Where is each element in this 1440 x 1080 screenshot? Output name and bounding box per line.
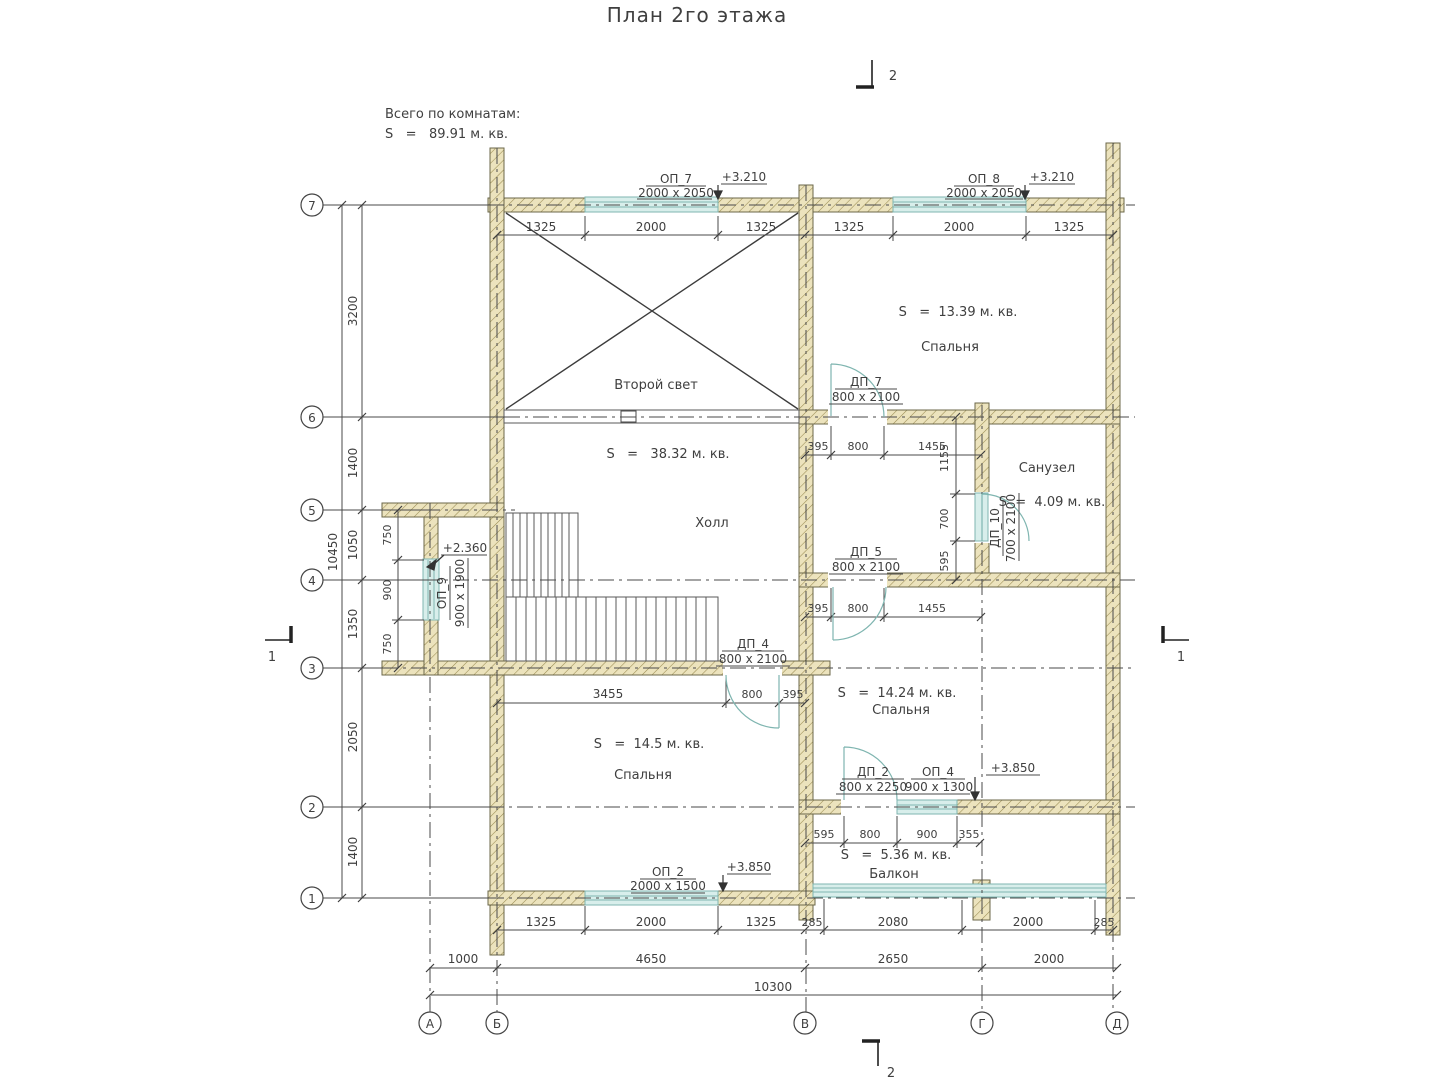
door-size-dp7: 800 x 2100 [832,390,900,404]
dim-bottom-3: 285 [802,916,823,929]
dim-top-0: 1325 [526,220,557,234]
dim-bottom-1: 2000 [636,915,667,929]
balcony-elevation: +3.850 [991,761,1035,775]
axis-col-v: В [801,1017,809,1031]
dim-bay-2: 750 [381,634,394,655]
dim-dp7-1: 800 [848,440,869,453]
door-label-dp5: ДП_5 [850,545,882,559]
dim-lower-total: 10300 [754,980,792,994]
section-left-label: 1 [268,650,276,665]
axis-row-7: 7 [308,199,316,213]
window-elev-op2: +3.850 [727,860,771,874]
dim-dp5-2: 1455 [918,602,946,615]
dim-dp7-0: 395 [808,440,829,453]
door-dp4-swing [726,675,779,728]
dim-dp4-2: 395 [783,688,804,701]
dim-dp2-2: 900 [917,828,938,841]
dim-left-3: 1350 [346,609,360,640]
dim-bottom-6: 285 [1094,916,1115,929]
axis-col-b: Б [493,1017,501,1031]
room-area-balcony: S = 5.36 м. кв. [841,848,952,863]
room-name-bathroom: Санузел [1019,461,1075,476]
staircase [506,513,718,661]
room-area-bedroom-top: S = 13.39 м. кв. [899,305,1018,320]
total-note-line1: Всего по комнатам: [385,107,520,122]
axis-row-5: 5 [308,504,316,518]
door-label-dp4: ДП_4 [737,637,769,651]
room-area-bedroom-bottom: S = 14.5 м. кв. [594,737,705,752]
floor-plan-drawing: План 2го этажа Всего по комнатам: S = 89… [0,0,1440,1080]
door-label-dp2: ДП_2 [857,765,889,779]
axis-col-a: А [426,1017,435,1031]
dim-lower-1: 4650 [636,952,667,966]
door-size-dp4: 800 x 2100 [719,652,787,666]
window-size-op4: 900 x 1300 [905,780,973,794]
dim-top-3: 1325 [834,220,865,234]
axis-row-2: 2 [308,801,316,815]
stair-treads-lower [516,597,706,661]
dim-dp2-3: 355 [959,828,980,841]
room-area-bedroom-mid: S = 14.24 м. кв. [838,686,957,701]
page-title: План 2го этажа [607,3,788,27]
dim-bath-1: 700 [938,509,951,530]
dim-bath-2: 595 [938,551,951,572]
window-label-op9: ОП_9 [435,577,449,609]
dim-dp2-1: 800 [860,828,881,841]
dim-lower-3: 2000 [1034,952,1065,966]
window-size-op9: 900 x 1900 [453,559,467,627]
dim-bottom-0: 1325 [526,915,557,929]
dim-left-4: 2050 [346,722,360,753]
door-label-dp7: ДП_7 [850,375,882,389]
dim-left-2: 1050 [346,530,360,561]
dim-left-total: 10450 [326,533,340,571]
dim-bay-0: 750 [381,525,394,546]
axis-col-g: Г [978,1017,985,1031]
dim-bottom-4: 2080 [878,915,909,929]
axis-row-3: 3 [308,662,316,676]
dim-top-5: 1325 [1054,220,1085,234]
stair-treads-upper [513,513,569,597]
dim-lower-2: 2650 [878,952,909,966]
section-top-label: 2 [889,69,897,84]
window-label-op2: ОП_2 [652,865,684,879]
dim-left-1: 1400 [346,448,360,479]
room-name-second-light: Второй свет [614,378,698,393]
room-name-bedroom-bottom: Спальня [614,768,672,783]
dim-bottom-5: 2000 [1013,915,1044,929]
window-size-op2: 2000 x 1500 [630,879,706,893]
dim-top-1: 2000 [636,220,667,234]
room-name-bedroom-top: Спальня [921,340,979,355]
dim-bay-1: 900 [381,580,394,601]
dim-dp5-1: 800 [848,602,869,615]
window-elev-op8: +3.210 [1030,170,1074,184]
total-note-line2: S = 89.91 м. кв. [385,127,508,142]
balcony-railing [813,884,1106,897]
dim-dp2-0: 595 [814,828,835,841]
dim-top-4: 2000 [944,220,975,234]
section-right-label: 1 [1177,650,1185,665]
dim-left-5: 1400 [346,837,360,868]
dim-dp4-0: 3455 [593,687,624,701]
dim-bath-0: 1155 [938,444,951,472]
dim-bottom-2: 1325 [746,915,777,929]
window-label-op4: ОП_4 [922,765,954,779]
window-elev-op7: +3.210 [722,170,766,184]
room-area-bathroom: S = 4.09 м. кв. [999,495,1105,510]
section-bottom-label: 2 [887,1066,895,1080]
door-size-dp5: 800 x 2100 [832,560,900,574]
dim-dp4-1: 800 [742,688,763,701]
axis-row-1: 1 [308,892,316,906]
window-elev-op9: +2.360 [443,541,487,555]
floor-plan-svg: План 2го этажа Всего по комнатам: S = 89… [0,0,1440,1080]
room-name-balcony: Балкон [869,867,919,882]
text-layer: План 2го этажа Всего по комнатам: S = 89… [268,3,1185,1080]
window-label-op8: ОП_8 [968,172,1000,186]
door-label-dp10: ДП_10 [988,508,1002,548]
axis-row-6: 6 [308,411,316,425]
room-name-bedroom-mid: Спальня [872,703,930,718]
room-area-hall: S = 38.32 м. кв. [606,447,729,462]
door-size-dp2: 800 x 2250 [839,780,907,794]
window-size-op7: 2000 x 2050 [638,186,714,200]
dim-lower-0: 1000 [448,952,479,966]
room-name-hall: Холл [695,516,728,531]
window-label-op7: ОП_7 [660,172,692,186]
dim-dp5-0: 395 [808,602,829,615]
window-size-op8: 2000 x 2050 [946,186,1022,200]
dim-top-2: 1325 [746,220,777,234]
axis-col-d: Д [1112,1017,1121,1031]
axis-row-4: 4 [308,574,316,588]
dim-left-0: 3200 [346,296,360,327]
